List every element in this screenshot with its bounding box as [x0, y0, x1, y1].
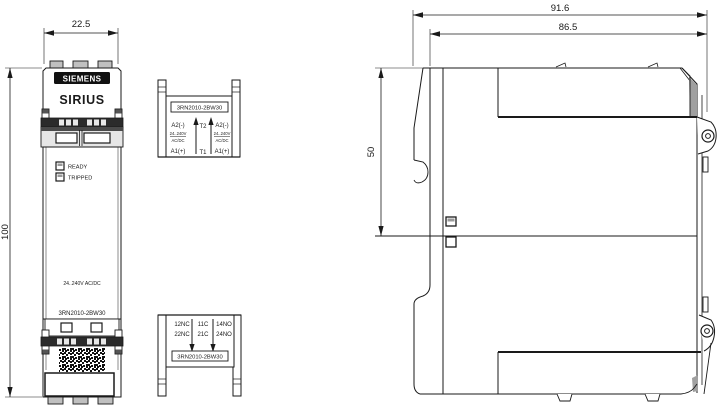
side-led-windows [446, 217, 456, 247]
front-bottom-tabs [48, 397, 113, 404]
top-view-model-label: 3RN2010-2BW30 [177, 106, 222, 112]
svg-text:24..240V: 24..240V [214, 131, 231, 136]
dimension-depth-body: 86.5 [430, 22, 707, 66]
ready-led-label: READY [68, 165, 88, 171]
front-body-outline [43, 68, 121, 397]
tripped-led-label: TRIPPED [68, 176, 92, 182]
sirius-label: SIRIUS [59, 93, 104, 107]
din-rail-clip [414, 68, 443, 394]
dimensional-drawing-page: SIEMENS SIRIUS [0, 0, 720, 407]
svg-text:A1(+): A1(+) [215, 149, 230, 155]
dim-side-height-label: 50 [366, 147, 377, 158]
voltage-rating-label: 24..240V AC/DC [63, 281, 101, 287]
dim-height-label: 100 [0, 224, 11, 240]
svg-text:12NC: 12NC [174, 322, 190, 328]
dimension-width: 22.5 [44, 19, 118, 64]
front-model-label: 3RN2010-2BW30 [58, 311, 106, 317]
svg-text:24NO: 24NO [216, 332, 232, 338]
svg-text:T1: T1 [199, 150, 207, 156]
top-view-left-labels: A2(-) 24..240V AC/DC A1(+) [170, 123, 187, 155]
front-top-tabs [50, 61, 112, 68]
siemens-logo-text: SIEMENS [63, 75, 102, 84]
svg-text:AC/DC: AC/DC [215, 138, 228, 143]
svg-text:11C: 11C [198, 322, 209, 328]
datamatrix-code [59, 348, 105, 372]
terminal-cover-flap [498, 68, 716, 394]
svg-text:14NO: 14NO [216, 322, 232, 328]
dim-depth-total-label: 91.6 [551, 3, 570, 14]
dim-width-label: 22.5 [72, 19, 91, 30]
dim-depth-body-label: 86.5 [559, 22, 578, 33]
siemens-logo: SIEMENS [54, 72, 110, 84]
svg-text:A2(-): A2(-) [215, 123, 228, 129]
top-view-right-labels: A2(-) 24..240V AC/DC A1(+) [214, 123, 231, 155]
bottom-view-model-label: 3RN2010-2BW30 [177, 355, 222, 361]
front-view: SIEMENS SIRIUS [41, 61, 123, 404]
svg-text:24..240V: 24..240V [170, 131, 187, 136]
dimension-depth-total: 91.6 [413, 3, 707, 112]
top-view-terminal-block: 3RN2010-2BW30 A2(-) 24..240V AC/DC A1(+)… [158, 80, 240, 157]
bottom-view-terminal-block: 12NC 11C 14NO 22NC 21C 24NO 3RN2010-2BW3… [158, 315, 241, 396]
technical-drawing: SIEMENS SIRIUS [0, 0, 720, 407]
svg-text:A2(-): A2(-) [171, 123, 184, 129]
svg-text:A1(+): A1(+) [171, 149, 186, 155]
side-dimensions: 91.6 86.5 50 [366, 3, 707, 236]
dimension-height: 100 [0, 68, 42, 397]
side-view [375, 63, 716, 401]
svg-text:22NC: 22NC [174, 332, 190, 338]
product-label-plate [45, 373, 114, 396]
svg-text:AC/DC: AC/DC [171, 138, 184, 143]
svg-text:T2: T2 [199, 124, 207, 130]
svg-text:21C: 21C [197, 332, 209, 338]
